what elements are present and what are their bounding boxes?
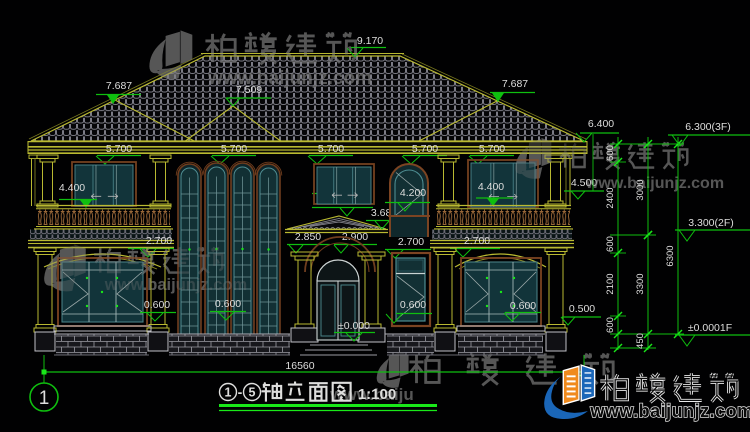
svg-text:5.700: 5.700 <box>479 143 505 155</box>
svg-text:0.600: 0.600 <box>400 299 426 311</box>
svg-text:5.700: 5.700 <box>318 143 344 155</box>
svg-text:600: 600 <box>605 145 616 161</box>
svg-text:±0.0001F: ±0.0001F <box>688 322 732 334</box>
svg-text:6.300(3F): 6.300(3F) <box>685 121 731 133</box>
svg-text:3300: 3300 <box>635 273 646 294</box>
svg-text:5.700: 5.700 <box>221 143 247 155</box>
svg-text:1:100: 1:100 <box>358 386 396 403</box>
svg-text:7.687: 7.687 <box>106 80 132 92</box>
svg-text:16560: 16560 <box>285 360 314 372</box>
svg-text:5.700: 5.700 <box>106 143 132 155</box>
svg-text:3000: 3000 <box>635 179 646 200</box>
svg-text:2.700: 2.700 <box>464 235 490 247</box>
svg-text:www.baijunjz.com: www.baijunjz.com <box>207 68 372 89</box>
svg-text:2.700: 2.700 <box>398 236 424 248</box>
svg-text:±0.000: ±0.000 <box>338 320 370 332</box>
svg-text:7.687: 7.687 <box>502 78 528 90</box>
svg-text:0.600: 0.600 <box>215 298 241 310</box>
svg-text:4.400: 4.400 <box>478 181 504 193</box>
svg-text:2400: 2400 <box>605 187 616 208</box>
svg-text:9.170: 9.170 <box>357 35 383 47</box>
svg-text:2.850: 2.850 <box>295 231 321 243</box>
svg-text:5.700: 5.700 <box>412 143 438 155</box>
svg-text:2100: 2100 <box>605 273 616 294</box>
svg-text:6300: 6300 <box>665 245 676 266</box>
svg-text:-: - <box>238 384 243 400</box>
svg-text:0.500: 0.500 <box>569 303 595 315</box>
svg-text:www.baijunjz.com: www.baijunjz.com <box>104 276 247 294</box>
svg-text:600: 600 <box>605 236 616 252</box>
svg-text:4.400: 4.400 <box>59 182 85 194</box>
svg-text:0.600: 0.600 <box>510 300 536 312</box>
svg-text:6.400: 6.400 <box>588 118 614 130</box>
svg-text:600: 600 <box>605 317 616 333</box>
svg-text:1: 1 <box>39 388 50 409</box>
svg-text:1: 1 <box>225 386 232 400</box>
svg-text:450: 450 <box>635 333 646 349</box>
svg-text:0.600: 0.600 <box>144 299 170 311</box>
svg-text:4.200: 4.200 <box>400 187 426 199</box>
svg-text:2.700: 2.700 <box>146 235 172 247</box>
svg-text:www.baijunjz.com: www.baijunjz.com <box>589 401 750 421</box>
svg-text:5: 5 <box>249 386 256 400</box>
svg-text:3.300(2F): 3.300(2F) <box>688 217 734 229</box>
